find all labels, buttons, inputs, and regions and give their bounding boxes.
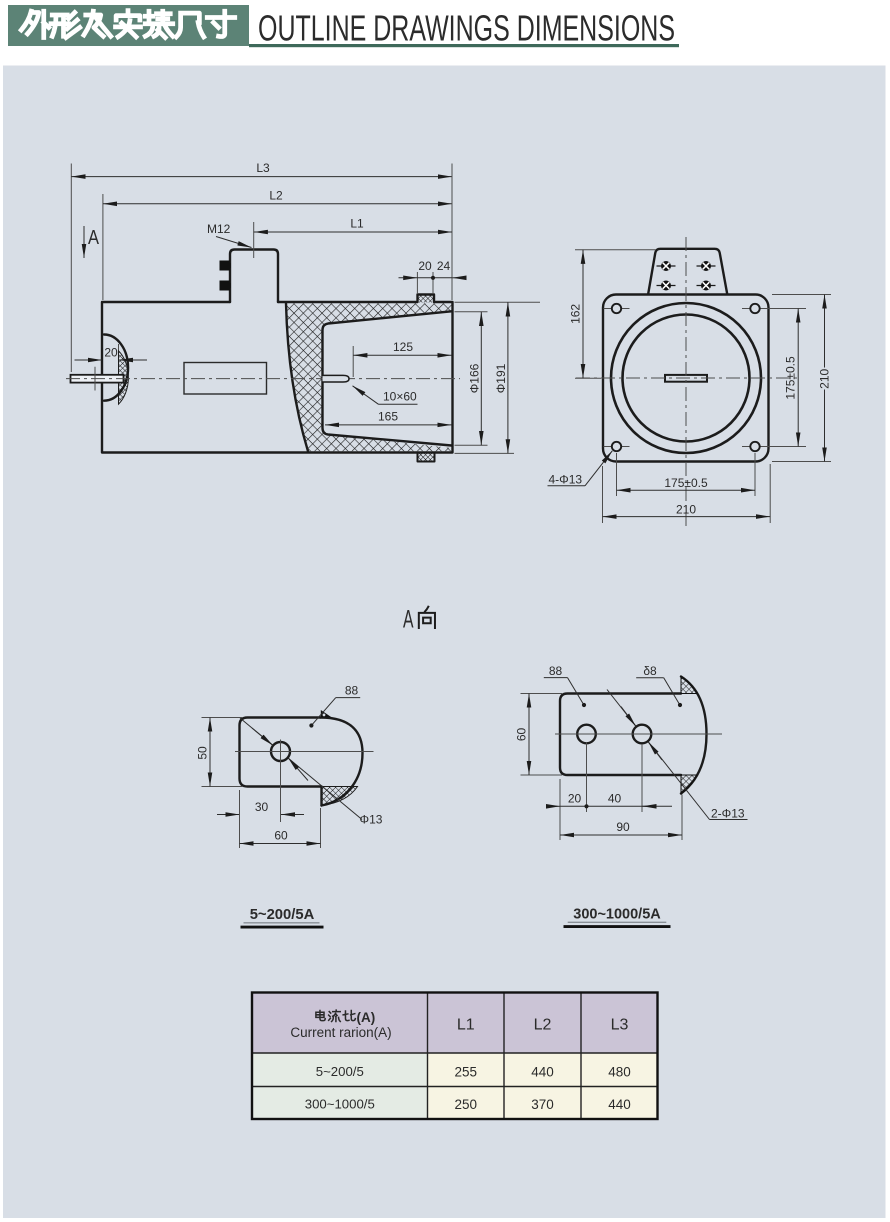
svg-text:480: 480 [608, 1064, 631, 1079]
svg-text:210: 210 [818, 368, 832, 388]
svg-text:88: 88 [345, 684, 359, 698]
svg-text:L1: L1 [350, 217, 364, 231]
svg-text:δ8: δ8 [643, 664, 657, 678]
svg-text:60: 60 [515, 728, 529, 742]
svg-text:2-Φ13: 2-Φ13 [711, 807, 745, 821]
svg-text:10×60: 10×60 [383, 390, 417, 404]
svg-text:370: 370 [531, 1097, 554, 1112]
svg-text:A: A [88, 227, 100, 249]
svg-text:5~200/5: 5~200/5 [316, 1064, 364, 1079]
svg-text:440: 440 [531, 1064, 554, 1079]
svg-text:20: 20 [104, 346, 118, 360]
svg-text:162: 162 [569, 304, 583, 324]
svg-text:20: 20 [568, 792, 582, 806]
svg-text:Φ191: Φ191 [494, 363, 508, 393]
svg-text:250: 250 [455, 1097, 478, 1112]
svg-text:125: 125 [393, 340, 413, 354]
svg-text:L2: L2 [269, 188, 283, 202]
svg-text:175±0.5: 175±0.5 [784, 356, 798, 400]
svg-text:90: 90 [616, 820, 630, 834]
svg-text:255: 255 [455, 1064, 478, 1079]
svg-text:165: 165 [378, 409, 398, 423]
svg-text:A: A [403, 606, 414, 634]
svg-text:4-Φ13: 4-Φ13 [549, 473, 583, 487]
svg-text:175±0.5: 175±0.5 [664, 476, 708, 490]
svg-text:M12: M12 [207, 222, 231, 236]
svg-text:5~200/5A: 5~200/5A [250, 907, 315, 923]
svg-text:50: 50 [195, 746, 209, 760]
svg-text:OUTLINE DRAWINGS DIMENSIONS: OUTLINE DRAWINGS DIMENSIONS [258, 8, 675, 49]
svg-text:40: 40 [608, 792, 622, 806]
svg-text:20: 20 [418, 259, 432, 273]
svg-text:L3: L3 [611, 1017, 629, 1034]
svg-text:24: 24 [437, 259, 451, 273]
svg-text:(A): (A) [357, 1010, 376, 1025]
svg-text:88: 88 [549, 664, 563, 678]
svg-text:L3: L3 [256, 161, 270, 175]
svg-text:210: 210 [676, 503, 696, 517]
svg-text:440: 440 [608, 1097, 631, 1112]
svg-text:Φ166: Φ166 [468, 363, 482, 393]
svg-text:60: 60 [274, 828, 288, 842]
svg-text:L2: L2 [534, 1017, 552, 1034]
svg-text:L1: L1 [457, 1017, 475, 1034]
svg-text:300~1000/5: 300~1000/5 [305, 1096, 375, 1111]
svg-text:Current rarion(A): Current rarion(A) [290, 1025, 391, 1040]
svg-text:30: 30 [255, 800, 269, 814]
svg-text:Φ13: Φ13 [360, 813, 383, 827]
svg-text:300~1000/5A: 300~1000/5A [573, 907, 661, 923]
